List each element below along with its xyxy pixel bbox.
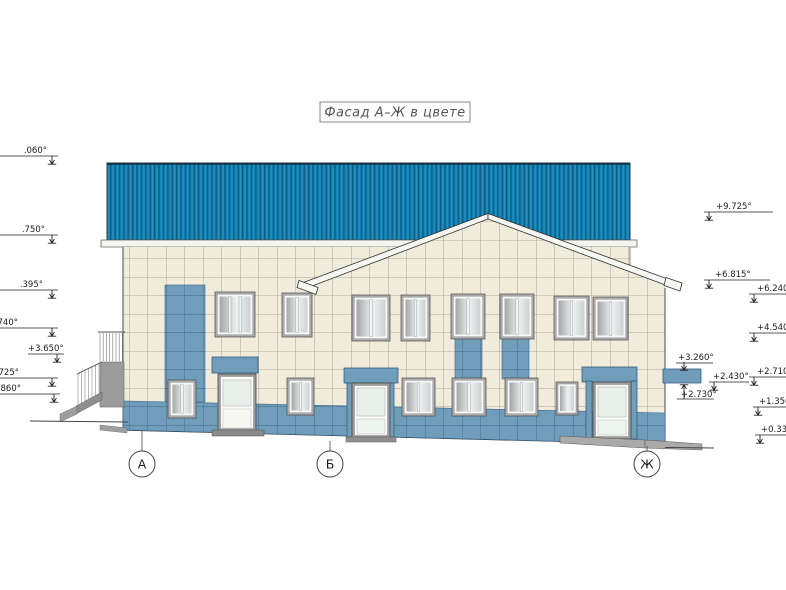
elevation-mark: +6.240°: [749, 284, 786, 302]
window-upper-2: [282, 293, 312, 337]
stair-balusters: [100, 333, 122, 361]
svg-text:+9.725°: +9.725°: [716, 202, 752, 212]
door-b-canopy: [344, 368, 398, 383]
window-ground-1: [168, 380, 196, 418]
door-zh-canopy: [582, 367, 637, 382]
window-upper-4: [401, 295, 430, 341]
svg-text:Ж: Ж: [640, 457, 654, 472]
svg-text:+6.240°: +6.240°: [757, 284, 786, 294]
door-zh-post-left: [586, 381, 592, 439]
window-upper-3: [352, 295, 390, 341]
entrance-door-b: [346, 383, 396, 442]
entrance-door-zh: [593, 382, 631, 439]
stair-stringer: [76, 392, 102, 414]
axis-marker-b: Б: [317, 441, 343, 477]
elevation-mark: .750°: [0, 225, 58, 243]
svg-text:.060°: .060°: [24, 146, 47, 156]
side-canopy-slab: [663, 369, 701, 383]
elevation-mark: .740°: [0, 318, 58, 336]
stair-slope-rail: [77, 362, 102, 374]
right-eave-end: [664, 278, 682, 292]
window-upper-6: [500, 294, 534, 339]
door-a-threshold: [212, 430, 264, 436]
elevation-mark: +0.330°: [755, 425, 786, 443]
window-upper-1: [215, 292, 255, 337]
axis-marker-a: А: [129, 431, 155, 477]
drawing-title: Фасад А–Ж в цвете: [320, 102, 470, 122]
axis-marker-zh: Ж: [634, 446, 660, 477]
elevation-mark: +3.650°: [28, 344, 64, 362]
svg-text:+2.730°: +2.730°: [681, 390, 717, 400]
elevation-mark: .860°: [0, 384, 60, 402]
stair-lower-flight: [60, 406, 77, 422]
ground-line-right: [665, 448, 714, 449]
title-text: Фасад А–Ж в цвете: [324, 106, 465, 121]
ground-line-left: [30, 421, 128, 422]
elevation-marks-left: .060° .750° .395° .740° +3.650° .725° .8…: [0, 146, 64, 402]
door-b-threshold: [346, 437, 396, 442]
svg-text:+0.330°: +0.330°: [761, 425, 786, 435]
elevation-mark: +9.725°: [704, 202, 773, 220]
door-a-header: [212, 357, 258, 373]
door-b-post-left: [347, 383, 352, 437]
svg-text:+6.815°: +6.815°: [715, 270, 751, 280]
svg-text:.740°: .740°: [0, 318, 18, 328]
svg-text:+1.350°: +1.350°: [759, 397, 786, 407]
elevation-mark: +1.350°: [753, 397, 786, 415]
svg-text:.725°: .725°: [0, 368, 19, 378]
elevation-mark: +2.730°: [677, 385, 717, 400]
elevation-mark: +2.710°: [749, 367, 786, 385]
svg-text:+4.540°: +4.540°: [757, 323, 786, 333]
svg-text:А: А: [138, 457, 147, 472]
svg-text:+3.260°: +3.260°: [678, 353, 714, 363]
window-upper-5: [451, 294, 485, 339]
elevation-mark: +3.260°: [676, 353, 714, 370]
window-upper-7: [554, 296, 589, 340]
svg-text:.750°: .750°: [22, 225, 45, 235]
door-zh-post-right: [631, 381, 637, 439]
window-ground-5: [505, 378, 538, 416]
elevation-marks-right: +9.725° +6.815° +6.240° +4.540° +3.260° …: [676, 202, 786, 443]
entrance-door-a: [212, 374, 264, 436]
elevation-mark: .395°: [0, 280, 58, 298]
facade-drawing: Фасад А–Ж в цвете .060° .750° .395° .740…: [0, 0, 786, 590]
elevation-mark: +4.540°: [749, 323, 786, 341]
elevation-mark: .060°: [0, 146, 58, 164]
window-ground-2: [287, 378, 314, 415]
svg-text:.395°: .395°: [20, 280, 43, 290]
stair-landing: [100, 362, 124, 407]
svg-text:.860°: .860°: [0, 384, 21, 394]
window-ground-4: [452, 378, 486, 416]
svg-text:+3.650°: +3.650°: [28, 344, 64, 354]
svg-text:+2.430°: +2.430°: [713, 372, 749, 382]
window-ground-3: [402, 378, 435, 416]
svg-text:+2.710°: +2.710°: [757, 367, 786, 377]
window-upper-8: [593, 297, 628, 340]
roof: [101, 163, 637, 247]
window-ground-6: [556, 382, 578, 415]
svg-text:Б: Б: [326, 457, 335, 472]
accent-strip-mid1: [455, 336, 482, 379]
accent-strip-mid2: [502, 336, 529, 379]
facade-drawing-sheet: Фасад А–Ж в цвете .060° .750° .395° .740…: [0, 0, 786, 590]
elevation-mark: +2.430°: [709, 372, 749, 390]
